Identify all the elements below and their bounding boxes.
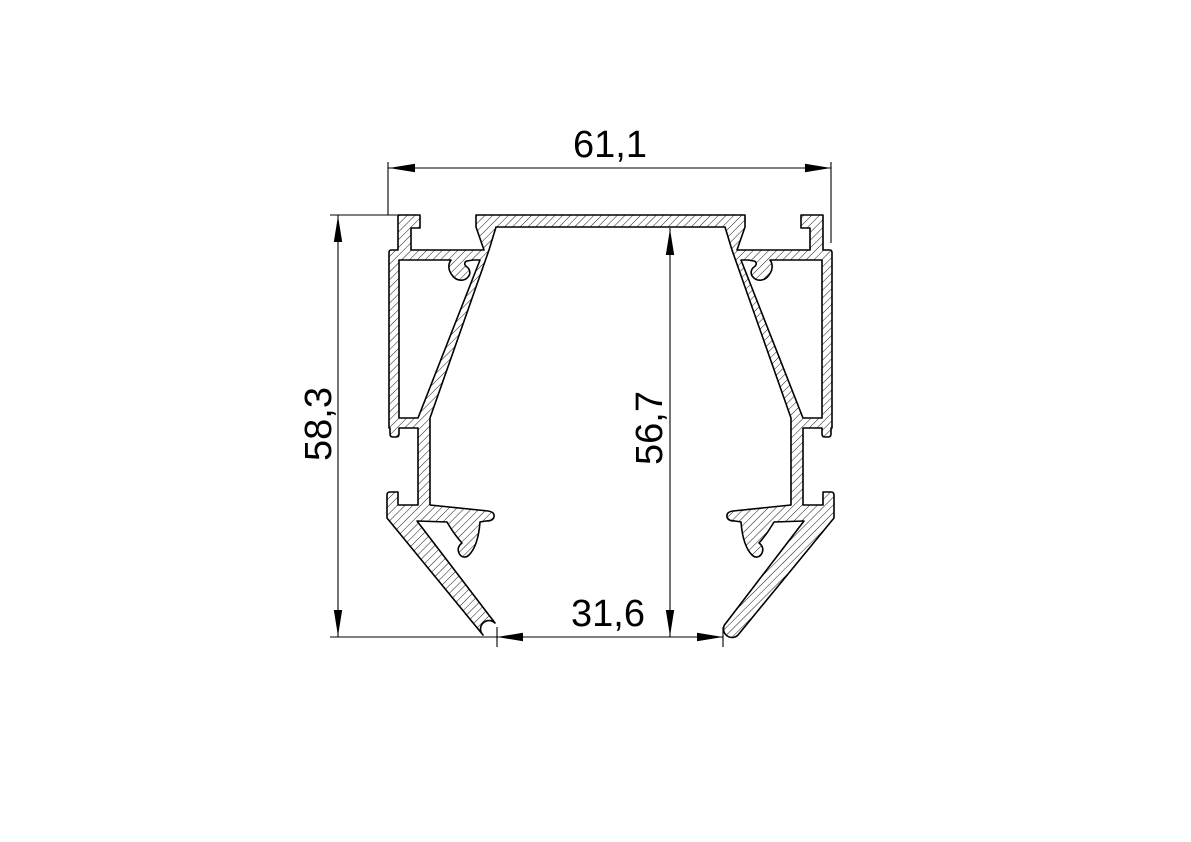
arrow-right-icon (805, 164, 831, 172)
arrow-down-icon (334, 610, 342, 636)
dimension-label-width-top: 61,1 (573, 124, 647, 166)
arrow-up-icon (334, 216, 342, 242)
dimension-width-top (388, 162, 831, 243)
technical-drawing: 61,1 58,3 56,7 31,6 (0, 0, 1191, 842)
profile-cross-section (387, 215, 834, 637)
dimension-label-width-bottom: 31,6 (571, 593, 645, 635)
profile-body (387, 215, 834, 637)
arrow-left-icon (389, 164, 415, 172)
extension-lines-width-top (388, 162, 831, 243)
arrow-left-icon (497, 633, 523, 641)
arrow-up-icon (666, 229, 674, 255)
dimension-label-height-inner: 56,7 (629, 391, 671, 465)
arrow-right-icon (697, 633, 723, 641)
dimension-label-height-overall: 58,3 (298, 387, 340, 461)
arrow-down-icon (666, 610, 674, 636)
